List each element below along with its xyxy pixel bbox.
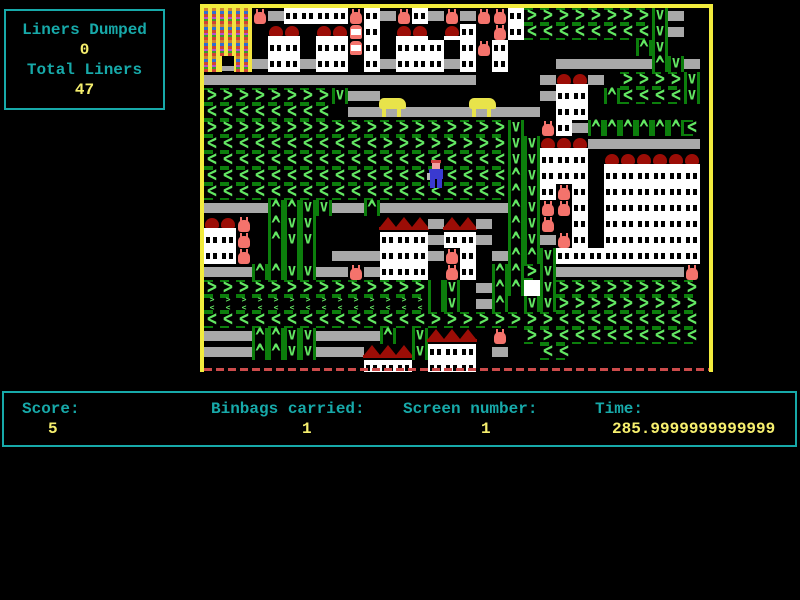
tile-belt [588, 56, 604, 72]
tile-dome-roof [604, 152, 620, 168]
tile-building-window [668, 168, 684, 184]
tile-building-window [428, 56, 444, 72]
tile-belt [476, 216, 492, 232]
tile-binbag [492, 328, 508, 344]
tile-building-window [332, 40, 348, 56]
tile-building-window [620, 248, 636, 264]
tile-dump-building [204, 8, 220, 24]
tile-liner-bin [348, 24, 364, 40]
tile-belt [412, 72, 428, 88]
tile-dome-roof [204, 216, 220, 232]
tile-belt [492, 344, 508, 360]
tile-building-window [636, 200, 652, 216]
tile-belt [428, 200, 444, 216]
status-bar: Score: 5 Binbags carried: 1 Screen numbe… [2, 391, 797, 447]
tile-belt [652, 136, 668, 152]
tile-belt [380, 56, 396, 72]
tile-building-window [604, 232, 620, 248]
tile-house-roof [396, 216, 412, 232]
tile-binbag [556, 200, 572, 216]
game-screen: Liners Dumped 0 Total Liners 47 Score: 5… [0, 0, 800, 600]
tile-belt [444, 200, 460, 216]
tile-belt [364, 248, 380, 264]
tile-dump-building [220, 24, 236, 40]
tile-belt [444, 72, 460, 88]
tile-belt [332, 328, 348, 344]
tile-belt [380, 8, 396, 24]
tile-building-window [652, 216, 668, 232]
tile-conveyor-left [684, 120, 700, 136]
tile-dome-roof [684, 152, 700, 168]
tile-building-window [396, 248, 412, 264]
tile-dump-building [204, 40, 220, 56]
tile-building-window [620, 232, 636, 248]
tile-building-window [380, 248, 396, 264]
sprite-dog [378, 96, 408, 117]
tile-dump-building [236, 56, 252, 72]
tile-dump-building [220, 8, 236, 24]
tile-belt [396, 72, 412, 88]
tile-dump-building [204, 24, 220, 40]
tile-building-window [556, 88, 572, 104]
tile-building-window [652, 184, 668, 200]
tile-conveyor-up [364, 200, 380, 216]
tile-dome-roof [572, 136, 588, 152]
tile-belt [236, 200, 252, 216]
tile-binbag [252, 8, 268, 24]
tile-building-window [620, 216, 636, 232]
tile-dump-building [204, 56, 220, 72]
tile-building-window [268, 40, 284, 56]
tile-dome-roof [556, 72, 572, 88]
tile-building-window [572, 184, 588, 200]
tile-belt [604, 136, 620, 152]
tile-belt [620, 136, 636, 152]
tile-belt [220, 328, 236, 344]
tile-belt [380, 200, 396, 216]
tile-belt [668, 136, 684, 152]
tile-binbag [236, 216, 252, 232]
tile-belt [460, 72, 476, 88]
playfield-bottom-edge [204, 368, 709, 371]
tile-dome-roof [652, 152, 668, 168]
tile-belt [428, 8, 444, 24]
tile-building-window [636, 168, 652, 184]
tile-building-window [556, 168, 572, 184]
time-label: Time: [595, 400, 643, 418]
tile-building-window [588, 248, 604, 264]
tile-building-window [652, 232, 668, 248]
tile-belt [364, 72, 380, 88]
tile-house-roof [444, 328, 460, 344]
liners-dumped-label: Liners Dumped [6, 20, 163, 40]
tile-building-window [636, 232, 652, 248]
tile-binbag [396, 8, 412, 24]
tile-house-roof [444, 216, 460, 232]
player-body [429, 169, 443, 179]
liners-dumped-value: 0 [6, 40, 163, 60]
tile-building-window [316, 8, 332, 24]
tile-binbag [444, 248, 460, 264]
tile-house-roof [364, 344, 380, 360]
tile-dump-building [236, 24, 252, 40]
tile-building-window [668, 200, 684, 216]
tile-building-window [364, 8, 380, 24]
tile-belt [204, 344, 220, 360]
tile-building-window [684, 168, 700, 184]
tile-dump-building [236, 8, 252, 24]
tile-building-window [364, 40, 380, 56]
tile-building-window [668, 232, 684, 248]
tile-dome-roof [316, 24, 332, 40]
tile-belt [332, 200, 348, 216]
tile-building-window [556, 152, 572, 168]
tile-building-window [604, 168, 620, 184]
tile-building-window [684, 200, 700, 216]
tile-building-window [204, 232, 220, 248]
tile-building-window [332, 8, 348, 24]
tile-belt [204, 200, 220, 216]
tile-binbag [476, 40, 492, 56]
tile-dome-roof [268, 24, 284, 40]
tile-building-window [604, 216, 620, 232]
screen-number-value: 1 [481, 420, 491, 438]
tile-house-roof [460, 328, 476, 344]
tile-belt [540, 72, 556, 88]
tile-building-window [604, 200, 620, 216]
tile-belt [348, 88, 364, 104]
tile-building-window [380, 232, 396, 248]
tile-belt [572, 56, 588, 72]
tile-building-window [684, 248, 700, 264]
tile-building-window [636, 216, 652, 232]
tile-building-window [460, 56, 476, 72]
tile-dome-roof [636, 152, 652, 168]
tile-belt [428, 216, 444, 232]
tile-building-window [572, 168, 588, 184]
tile-building-window [556, 120, 572, 136]
tile-building-window [428, 344, 444, 360]
tile-building-window [684, 216, 700, 232]
tile-house-roof [412, 216, 428, 232]
tile-building-window [412, 40, 428, 56]
player-legs [430, 179, 442, 188]
tile-binbag [476, 8, 492, 24]
tile-building-window [460, 24, 476, 40]
tile-conveyor-left [684, 328, 700, 344]
tile-building-window [284, 40, 300, 56]
tile-conveyor-down [412, 344, 428, 360]
tile-building-window [364, 24, 380, 40]
tile-building-window [604, 248, 620, 264]
tile-building-window [668, 248, 684, 264]
tile-dome-roof [332, 24, 348, 40]
tile-building-window [204, 248, 220, 264]
tile-belt [460, 8, 476, 24]
tile-building-window [620, 184, 636, 200]
tile-building-window [300, 8, 316, 24]
tile-conveyor-up [380, 328, 396, 344]
tile-building-window [364, 56, 380, 72]
tile-building-window [316, 56, 332, 72]
tile-building-window [636, 184, 652, 200]
tile-belt [332, 248, 348, 264]
tile-building-window [556, 104, 572, 120]
tile-belt [556, 56, 572, 72]
tile-building-window [572, 248, 588, 264]
tile-building-window [396, 40, 412, 56]
tile-house-roof [380, 216, 396, 232]
tile-belt [220, 344, 236, 360]
tile-conveyor-left [556, 344, 572, 360]
tile-building-window [684, 232, 700, 248]
tile-conveyor-right [412, 280, 428, 296]
tile-building-window [636, 248, 652, 264]
tile-belt [268, 8, 284, 24]
tile-conveyor-down [300, 232, 316, 248]
time-value: 285.9999999999999 [612, 420, 775, 438]
tile-building-window [620, 200, 636, 216]
tile-building-window [396, 232, 412, 248]
tile-dump-building [220, 40, 236, 56]
tile-dome-roof [412, 24, 428, 40]
tile-belt [316, 344, 332, 360]
score-label: Score: [22, 400, 80, 418]
tile-belt [444, 56, 460, 72]
tile-conveyor-down [684, 88, 700, 104]
tile-building-window [652, 168, 668, 184]
tile-building-window [668, 184, 684, 200]
score-value: 5 [48, 420, 58, 438]
tile-belt [636, 136, 652, 152]
tile-building-window [652, 200, 668, 216]
tile-belt [348, 344, 364, 360]
tile-building-window [460, 40, 476, 56]
tile-building-window [444, 232, 460, 248]
tile-belt [412, 200, 428, 216]
tile-binbag [236, 232, 252, 248]
binbags-value: 1 [302, 420, 312, 438]
liners-panel: Liners Dumped 0 Total Liners 47 [4, 9, 165, 110]
tile-dome-roof [620, 152, 636, 168]
tile-building-window [412, 248, 428, 264]
tile-building-window [572, 232, 588, 248]
tile-house-roof [380, 344, 396, 360]
tile-belt [300, 56, 316, 72]
tile-binbag [348, 8, 364, 24]
tile-building-window [412, 56, 428, 72]
tile-dump-building [236, 40, 252, 56]
tile-building-window [604, 184, 620, 200]
tile-building-window [668, 216, 684, 232]
tile-binbag [444, 8, 460, 24]
tile-building-window [492, 40, 508, 56]
tile-house-roof [460, 216, 476, 232]
tile-conveyor-down [300, 344, 316, 360]
tile-building-window [412, 232, 428, 248]
tile-dome-roof [220, 216, 236, 232]
tile-building-window [268, 56, 284, 72]
tile-building-window [572, 152, 588, 168]
tile-dome-roof [284, 24, 300, 40]
tile-building-window [396, 56, 412, 72]
tile-building-window [620, 168, 636, 184]
tile-belt [252, 56, 268, 72]
tile-belt [684, 136, 700, 152]
tile-binbag [556, 184, 572, 200]
total-liners-label: Total Liners [6, 60, 163, 80]
tile-dome-roof [572, 72, 588, 88]
tile-binbag [492, 24, 508, 40]
tile-belt [476, 200, 492, 216]
tile-belt [204, 328, 220, 344]
tile-building-window [220, 248, 236, 264]
tile-building-window [316, 40, 332, 56]
tile-belt [396, 200, 412, 216]
tile-belt [428, 232, 444, 248]
tile-belt [428, 72, 444, 88]
tile-building-window [412, 8, 428, 24]
tile-belt [380, 72, 396, 88]
tile-belt [460, 200, 476, 216]
playfield[interactable] [200, 4, 713, 372]
tile-belt [348, 328, 364, 344]
tile-building-window [492, 56, 508, 72]
tile-belt [476, 232, 492, 248]
tile-building-window [684, 184, 700, 200]
tile-belt [588, 136, 604, 152]
tile-dome-roof [556, 136, 572, 152]
tile-dome-roof [444, 24, 460, 40]
tile-dome-roof [396, 24, 412, 40]
tile-binbag [492, 8, 508, 24]
tile-building-window [460, 344, 476, 360]
tile-building-window [460, 248, 476, 264]
tile-building-window [284, 8, 300, 24]
tile-layer [204, 8, 713, 372]
tile-building-window [572, 216, 588, 232]
tile-building-window [428, 40, 444, 56]
sprite-dog [468, 96, 498, 117]
tile-belt [220, 200, 236, 216]
tile-building-window [332, 56, 348, 72]
tile-belt [348, 248, 364, 264]
tile-belt [428, 248, 444, 264]
tile-building-window [652, 248, 668, 264]
binbags-label: Binbags carried: [211, 400, 365, 418]
tile-building-window [444, 344, 460, 360]
tile-building-window [572, 88, 588, 104]
tile-building-window [220, 232, 236, 248]
tile-liner-bin [348, 40, 364, 56]
screen-number-label: Screen number: [403, 400, 537, 418]
sprite-player [428, 160, 444, 188]
tile-dome-roof [668, 152, 684, 168]
tile-building-window [572, 200, 588, 216]
total-liners-value: 47 [6, 80, 163, 100]
tile-building-window [284, 56, 300, 72]
tile-dump-door [220, 56, 236, 72]
tile-belt [540, 88, 556, 104]
tile-belt [332, 344, 348, 360]
tile-building-window [460, 232, 476, 248]
